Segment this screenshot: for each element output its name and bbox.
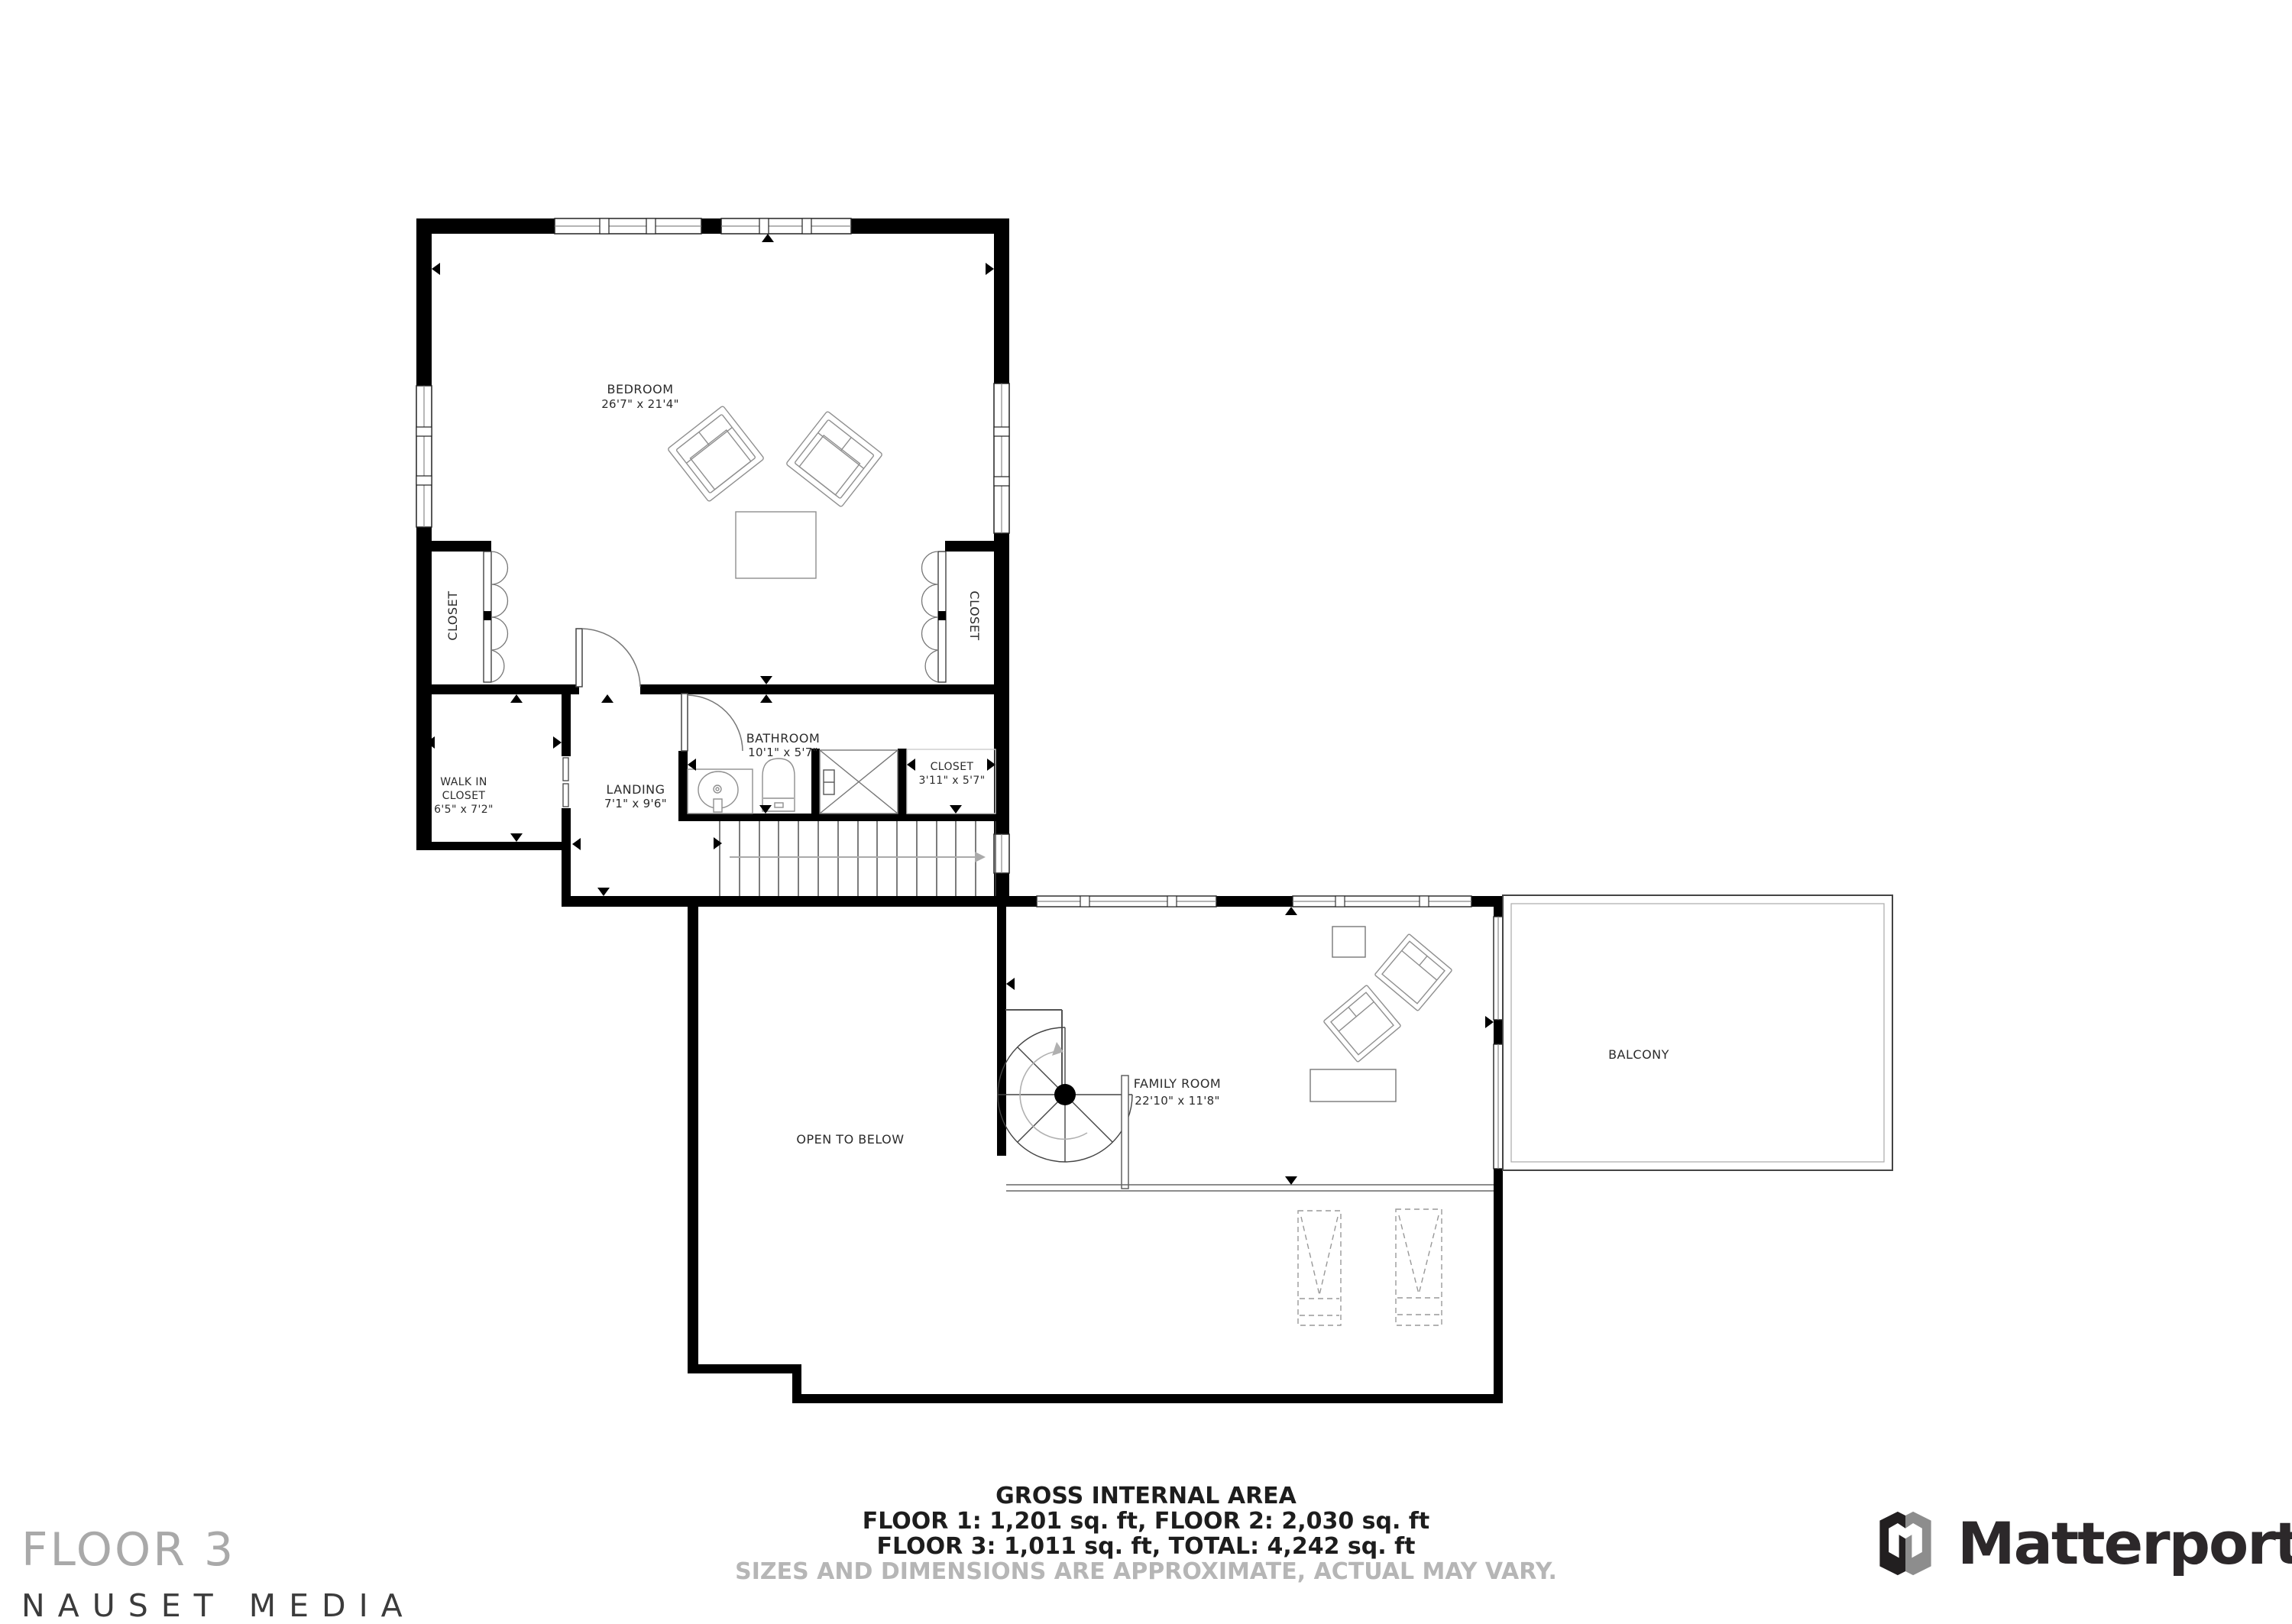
bedroom-door [576, 629, 640, 694]
bedroom-chair-left [668, 406, 765, 502]
entry-arrow [553, 736, 562, 749]
entry-arrow [1006, 978, 1015, 990]
family-room-edge-line [1006, 1185, 1494, 1191]
room-labels: BEDROOM 26'7" x 21'4" CLOSET CLOSET WALK… [434, 382, 1669, 1147]
walkin-dims: 6'5" x 7'2" [434, 804, 494, 816]
balcony-door [1494, 1044, 1503, 1169]
bathroom-label: BATHROOM [746, 731, 821, 746]
spiral-center-post [1054, 1084, 1076, 1105]
window-bedroom-left [416, 386, 432, 527]
balcony-outline [1503, 895, 1892, 1170]
matterport-logo-icon [1873, 1506, 1938, 1580]
family-room-dims: 22'10" x 11'8" [1135, 1094, 1219, 1108]
closet-small-label: CLOSET [931, 761, 974, 773]
closet-right-bifold-doors [922, 552, 947, 682]
matterport-branding: Matterport [1873, 1506, 2292, 1580]
bedroom-chair-right [786, 411, 883, 507]
opening-markers [426, 234, 1494, 1185]
closet-left-bifold-doors [484, 552, 508, 682]
furniture-layer [668, 406, 1452, 1325]
balcony-label: BALCONY [1608, 1047, 1669, 1062]
entry-arrow [762, 234, 774, 242]
entry-arrow [572, 838, 581, 850]
family-chair-right [1374, 933, 1452, 1011]
bathroom-dims: 10'1" x 5'7" [748, 746, 818, 759]
gross-area-title: GROSS INTERNAL AREA [0, 1483, 2292, 1509]
bedroom-table [736, 512, 816, 578]
spiral-railing [1122, 1076, 1128, 1189]
deck-lounge-chair-2 [1396, 1209, 1442, 1325]
main-stairs [720, 821, 995, 896]
family-room-label: FAMILY ROOM [1134, 1076, 1221, 1091]
deck-lounge-chair-1 [1298, 1211, 1341, 1325]
closet-left-label: CLOSET [445, 590, 460, 640]
walls-layer [416, 218, 1503, 1403]
bathroom-door [681, 694, 743, 751]
entry-arrow [760, 676, 772, 684]
open-to-below-label: OPEN TO BELOW [796, 1132, 904, 1147]
company-name: NAUSET MEDIA [21, 1587, 416, 1624]
bedroom-label: BEDROOM [607, 382, 673, 396]
window-family-right-upper [1494, 917, 1503, 1020]
window-family-top-left [1037, 896, 1216, 907]
entry-arrow [601, 694, 613, 703]
walkin-label-2: CLOSET [442, 790, 486, 802]
entry-arrow [597, 888, 610, 896]
family-console-table [1310, 1069, 1396, 1102]
entry-arrow [907, 759, 915, 771]
entry-arrow [950, 805, 962, 814]
walkin-label-1: WALK IN [440, 776, 487, 788]
entry-arrow [759, 805, 772, 814]
closet-right-label: CLOSET [967, 590, 982, 640]
floorplan-page: { "rooms": { "bedroom": {"name": "BEDROO… [0, 0, 2292, 1620]
family-side-table [1332, 927, 1365, 957]
floor-label: FLOOR 3 [21, 1523, 416, 1577]
window-family-top-right [1293, 896, 1471, 907]
window-bedroom-top-right [721, 218, 851, 234]
matterport-wordmark: Matterport [1957, 1509, 2292, 1577]
sink-counter-icon [688, 769, 753, 814]
family-chair-left [1323, 985, 1401, 1062]
entry-arrow [1485, 1016, 1494, 1028]
window-bedroom-top-left [555, 218, 701, 234]
floor-branding: FLOOR 3 NAUSET MEDIA [21, 1523, 416, 1624]
landing-label: LANDING [606, 782, 665, 797]
spiral-staircase [998, 1010, 1132, 1189]
toilet-icon [762, 759, 795, 811]
entry-arrow [510, 833, 523, 842]
entry-arrow [986, 263, 994, 275]
walkin-closet-door [563, 758, 568, 807]
entry-arrow [432, 263, 440, 275]
bedroom-dims: 26'7" x 21'4" [601, 397, 679, 411]
entry-arrow [714, 837, 722, 849]
shower-icon [820, 750, 898, 814]
doors-layer [484, 552, 946, 807]
entry-arrow [760, 694, 772, 703]
entry-arrow [1285, 1176, 1297, 1185]
window-stairwell [994, 834, 1009, 873]
floor-plan-canvas: BEDROOM 26'7" x 21'4" CLOSET CLOSET WALK… [0, 0, 2292, 1620]
window-bedroom-right [994, 383, 1009, 533]
entry-arrow [510, 694, 523, 703]
landing-dims: 7'1" x 9'6" [604, 797, 667, 810]
entry-arrow [1285, 907, 1297, 915]
closet-small-dims: 3'11" x 5'7" [918, 775, 985, 787]
